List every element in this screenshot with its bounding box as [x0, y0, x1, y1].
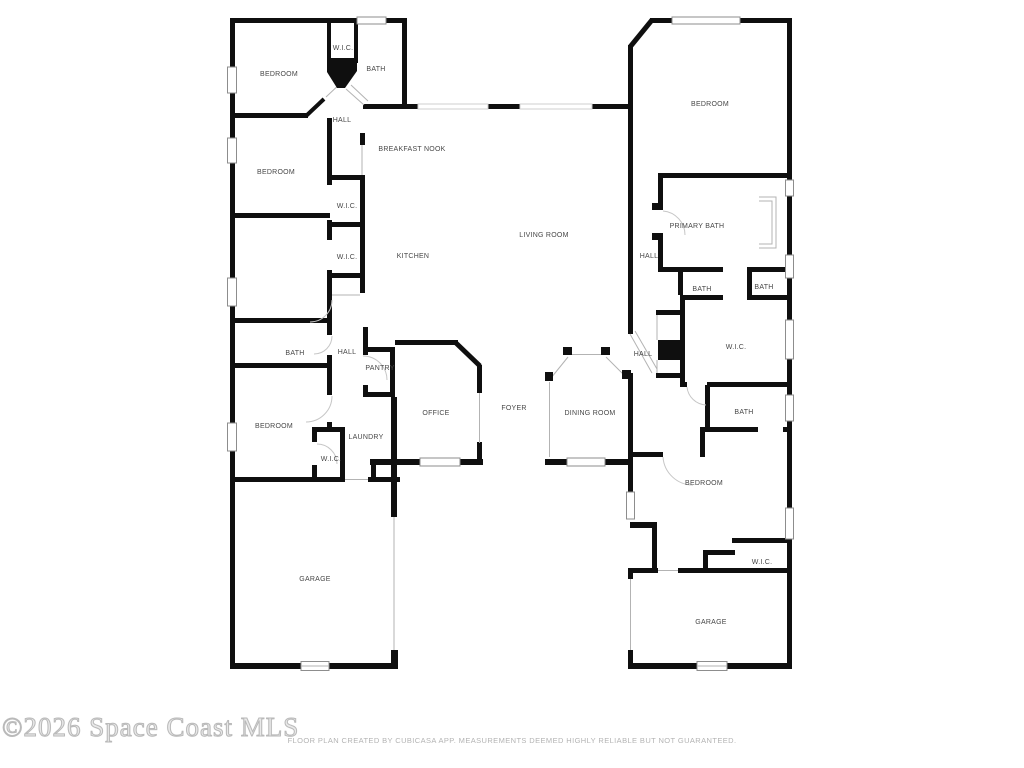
room-label-hall-1: HALL	[333, 117, 352, 124]
left-wing-walls	[230, 18, 482, 650]
room-label-office: OFFICE	[422, 410, 449, 417]
room-label-laundry: LAUNDRY	[348, 434, 383, 441]
room-label-garage-left: GARAGE	[299, 576, 331, 583]
floor-plan-svg: BEDROOM W.I.C. BATH HALL BREAKFAST NOOK …	[0, 0, 1024, 768]
room-label-wic-3: W.I.C.	[337, 254, 358, 261]
room-label-garage-right: GARAGE	[695, 619, 727, 626]
room-label-hall-2: HALL	[640, 253, 659, 260]
room-label-foyer: FOYER	[501, 405, 526, 412]
floor-plan-page: BEDROOM W.I.C. BATH HALL BREAKFAST NOOK …	[0, 0, 1024, 768]
room-label-hall-3: HALL	[634, 351, 653, 358]
room-label-living-room: LIVING ROOM	[519, 232, 568, 239]
room-label-bath-4: BATH	[285, 350, 304, 357]
room-label-primary-bath: PRIMARY BATH	[670, 223, 725, 230]
room-label-bath-2: BATH	[692, 286, 711, 293]
room-label-pantry: PANTRY	[365, 365, 394, 372]
room-label-bath-3: BATH	[754, 284, 773, 291]
room-label-wic-6: W.I.C.	[752, 559, 773, 566]
room-label-bedroom-4: BEDROOM	[255, 423, 293, 430]
room-label-wic-2: W.I.C.	[337, 203, 358, 210]
room-label-bath-5: BATH	[734, 409, 753, 416]
room-label-bedroom-2: BEDROOM	[257, 169, 295, 176]
room-label-bedroom-5: BEDROOM	[685, 480, 723, 487]
garage-door-left	[301, 662, 329, 671]
room-label-breakfast-nook: BREAKFAST NOOK	[378, 146, 445, 153]
right-wing-walls	[628, 108, 792, 650]
room-label-wic-5: W.I.C.	[321, 456, 342, 463]
garage-door-right	[697, 662, 727, 671]
room-labels: BEDROOM W.I.C. BATH HALL BREAKFAST NOOK …	[255, 45, 774, 626]
room-label-wic-1: W.I.C.	[333, 45, 354, 52]
cubicasa-disclaimer: FLOOR PLAN CREATED BY CUBICASA APP. MEAS…	[0, 736, 1024, 745]
room-label-bedroom-3: BEDROOM	[691, 101, 729, 108]
cased-openings	[306, 197, 776, 485]
room-label-bath-1: BATH	[366, 66, 385, 73]
room-label-wic-4: W.I.C.	[726, 344, 747, 351]
room-label-hall-4: HALL	[338, 349, 357, 356]
room-label-bedroom-1: BEDROOM	[260, 71, 298, 78]
room-label-kitchen: KITCHEN	[397, 253, 429, 260]
room-label-dining-room: DINING ROOM	[565, 410, 616, 417]
